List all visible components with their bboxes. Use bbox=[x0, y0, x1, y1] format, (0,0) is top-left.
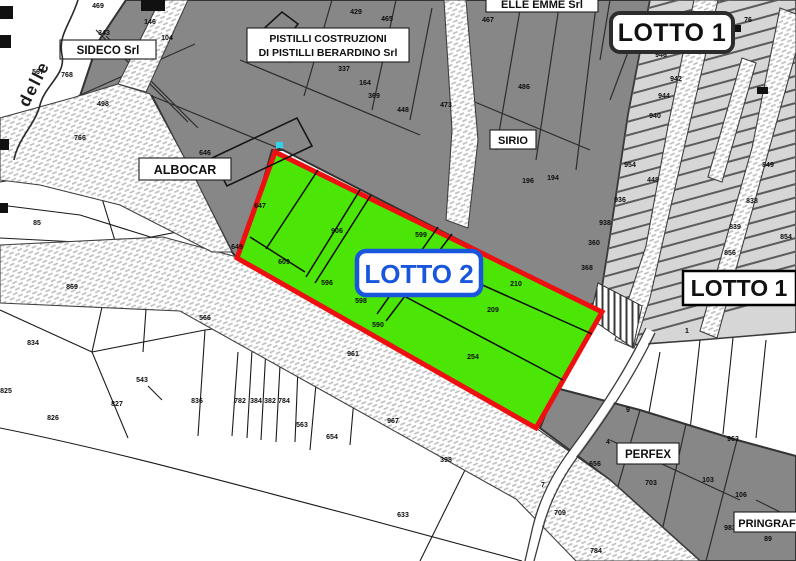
parcel-number: 944 bbox=[658, 93, 670, 100]
parcel-number: 473 bbox=[440, 102, 452, 109]
parcel-number: 709 bbox=[554, 510, 566, 517]
perfex-label: PERFEX bbox=[625, 449, 671, 461]
building-mark bbox=[757, 87, 768, 94]
lotto1-right-label: LOTTO 1 bbox=[691, 275, 788, 301]
parcel-number: 609 bbox=[278, 259, 290, 266]
parcel-number: 647 bbox=[254, 203, 266, 210]
parcel-number: 963 bbox=[727, 436, 739, 443]
parcel-number: 633 bbox=[397, 512, 409, 519]
parcel-number: 429 bbox=[350, 9, 362, 16]
parcel-number: 343 bbox=[98, 30, 110, 37]
parcel-number: 596 bbox=[321, 280, 333, 287]
parcel-number: 106 bbox=[735, 492, 747, 499]
parcel-number: 784 bbox=[278, 398, 290, 405]
label-sirio: SIRIO bbox=[490, 130, 536, 149]
pistilli-label-line1: PISTILLI COSTRUZIONI bbox=[269, 33, 386, 45]
edge-parcel-tag bbox=[0, 203, 8, 213]
parcel-number: 967 bbox=[387, 418, 399, 425]
parcel-number: 498 bbox=[97, 101, 109, 108]
parcel-number: 368 bbox=[581, 265, 593, 272]
parcel-number: 469 bbox=[92, 3, 104, 10]
parcel-number: 360 bbox=[588, 240, 600, 247]
marker-cyan bbox=[276, 142, 283, 148]
parcel-number: 4 bbox=[606, 439, 610, 446]
edge-parcel-tag bbox=[0, 6, 13, 19]
parcel-number: 209 bbox=[487, 307, 499, 314]
parcel-number: 448 bbox=[397, 107, 409, 114]
parcel-number: 76 bbox=[744, 17, 752, 24]
parcel-number: 936 bbox=[614, 197, 626, 204]
edge-parcel-tag bbox=[141, 0, 165, 11]
parcel-number: 369 bbox=[368, 93, 380, 100]
lotto2-label: LOTTO 2 bbox=[364, 259, 473, 289]
parcel-number: 961 bbox=[347, 351, 359, 358]
parcel-number: 942 bbox=[670, 76, 682, 83]
parcel-number: 784 bbox=[590, 548, 602, 555]
label-sideco: SIDECO Srl bbox=[60, 40, 156, 59]
sideco-label: SIDECO Srl bbox=[77, 45, 140, 57]
edge-parcel-tag bbox=[0, 139, 9, 150]
parcel-number: 196 bbox=[522, 178, 534, 185]
parcel-number: 563 bbox=[296, 422, 308, 429]
parcel-number: 649 bbox=[231, 244, 243, 251]
parcel-number: 768 bbox=[61, 72, 73, 79]
parcel-number: 543 bbox=[136, 377, 148, 384]
parcel-number: 382 bbox=[264, 398, 276, 405]
parcel-number: 856 bbox=[724, 250, 736, 257]
parcel-number: 654 bbox=[326, 434, 338, 441]
pistilli-label-line2: DI PISTILLI BERARDINO Srl bbox=[259, 47, 398, 59]
parcel-number: 566 bbox=[199, 315, 211, 322]
label-pringraf: PRINGRAF bbox=[734, 512, 796, 532]
label-albocar: ALBOCAR bbox=[139, 158, 231, 180]
lotto2-badge: LOTTO 2 bbox=[357, 251, 481, 295]
parcel-number: 826 bbox=[47, 415, 59, 422]
cadastral-map: 4691463431045677684987666464294653371643… bbox=[0, 0, 796, 561]
parcel-number: 465 bbox=[381, 16, 393, 23]
parcel-number: 146 bbox=[144, 19, 156, 26]
parcel-number: 590 bbox=[372, 322, 384, 329]
parcel-number: 656 bbox=[589, 461, 601, 468]
parcel-number: 938 bbox=[599, 220, 611, 227]
label-perfex: PERFEX bbox=[617, 443, 679, 464]
lotto1-top-label: LOTTO 1 bbox=[618, 19, 727, 47]
parcel-number: 869 bbox=[66, 284, 78, 291]
parcel-number: 854 bbox=[780, 234, 792, 241]
parcel-number: 839 bbox=[729, 224, 741, 231]
sirio-label: SIRIO bbox=[498, 135, 528, 147]
pringraf-label: PRINGRAF bbox=[738, 518, 796, 530]
map-canvas: 4691463431045677684987666464294653371643… bbox=[0, 0, 796, 561]
parcel-number: 384 bbox=[250, 398, 262, 405]
parcel-number: 467 bbox=[482, 17, 494, 24]
parcel-number: 85 bbox=[33, 220, 41, 227]
parcel-number: 599 bbox=[415, 232, 427, 239]
parcel-number: 337 bbox=[338, 66, 350, 73]
parcel-number: 89 bbox=[764, 536, 772, 543]
parcel-number: 210 bbox=[510, 281, 522, 288]
parcel-number: 486 bbox=[518, 84, 530, 91]
parcel-number: 782 bbox=[234, 398, 246, 405]
edge-parcel-tag bbox=[0, 35, 11, 48]
parcel-number: 104 bbox=[161, 35, 173, 42]
parcel-number: 646 bbox=[199, 150, 211, 157]
parcel-number: 1 bbox=[685, 328, 689, 335]
label-elle-emme: ELLE EMME Srl bbox=[486, 0, 598, 12]
parcel-number: 194 bbox=[547, 175, 559, 182]
lotto1-badge-right: LOTTO 1 bbox=[683, 271, 796, 305]
parcel-number: 7 bbox=[541, 482, 545, 489]
parcel-number: 838 bbox=[746, 198, 758, 205]
parcel-number: 9 bbox=[626, 407, 630, 414]
parcel-number: 954 bbox=[624, 162, 636, 169]
parcel-number: 940 bbox=[649, 113, 661, 120]
lotto1-badge-top: LOTTO 1 bbox=[611, 13, 733, 52]
parcel-number: 598 bbox=[355, 298, 367, 305]
parcel-number: 448 bbox=[647, 177, 659, 184]
parcel-number: 834 bbox=[27, 340, 39, 347]
parcel-number: 836 bbox=[191, 398, 203, 405]
parcel-number: 825 bbox=[0, 388, 12, 395]
parcel-number: 254 bbox=[467, 354, 479, 361]
parcel-number: 103 bbox=[702, 477, 714, 484]
parcel-number: 906 bbox=[331, 228, 343, 235]
parcel-number: 766 bbox=[74, 135, 86, 142]
label-pistilli: PISTILLI COSTRUZIONI DI PISTILLI BERARDI… bbox=[247, 28, 409, 62]
elle-emme-label: ELLE EMME Srl bbox=[501, 0, 583, 11]
parcel-number: 398 bbox=[440, 457, 452, 464]
parcel-number: 703 bbox=[645, 480, 657, 487]
parcel-number: 164 bbox=[359, 80, 371, 87]
parcel-number: 849 bbox=[762, 162, 774, 169]
albocar-label: ALBOCAR bbox=[154, 163, 217, 177]
parcel-number: 827 bbox=[111, 401, 123, 408]
